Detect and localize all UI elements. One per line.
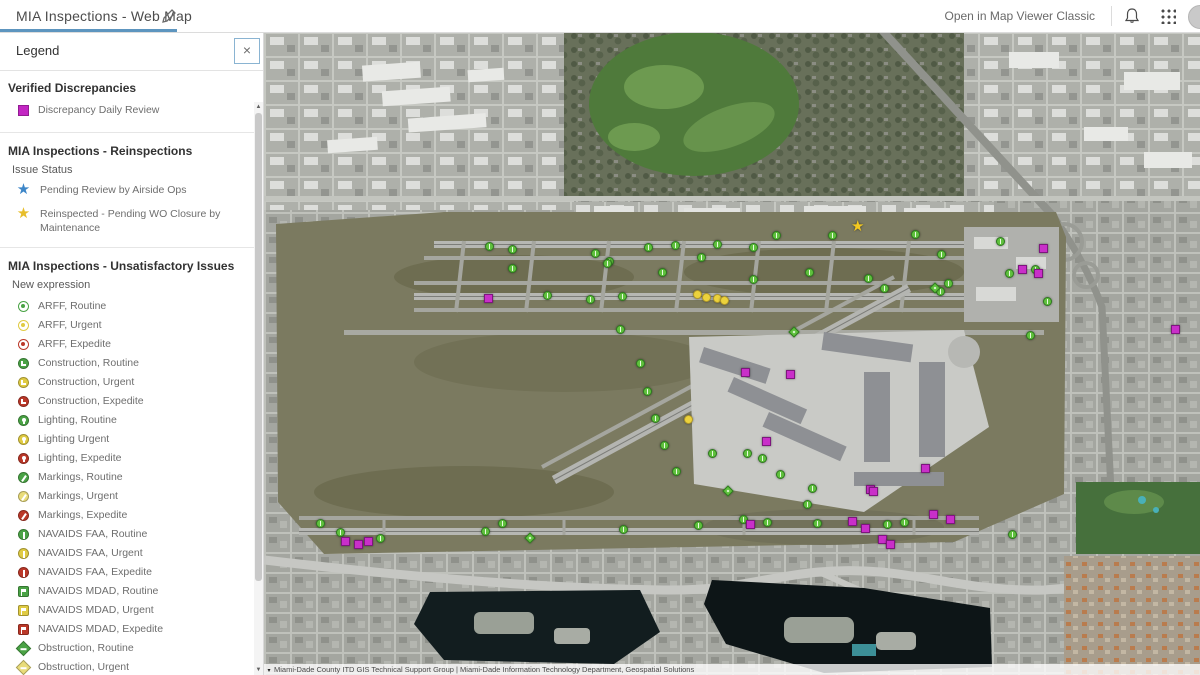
- navfaa-legend-icon: [18, 529, 29, 540]
- green-marker[interactable]: [805, 268, 814, 277]
- green-marker[interactable]: [485, 242, 494, 251]
- legend-item-label: NAVAIDS MDAD, Expedite: [38, 623, 163, 637]
- legend-item-label: NAVAIDS FAA, Routine: [38, 528, 147, 542]
- legend-item-label: Discrepancy Daily Review: [38, 104, 159, 118]
- legend-item-label: NAVAIDS MDAD, Routine: [38, 585, 158, 599]
- yellow-marker[interactable]: [702, 293, 711, 302]
- legend-item: Lighting, Routine: [0, 411, 254, 430]
- green-marker[interactable]: [376, 534, 385, 543]
- arff-legend-icon: [18, 339, 29, 350]
- legend-item: ★Pending Review by Airside Ops: [0, 182, 254, 206]
- legend-item-label: Obstruction, Routine: [38, 642, 134, 656]
- legend-item: Construction, Urgent: [0, 373, 254, 392]
- green-marker[interactable]: [1026, 331, 1035, 340]
- legend-item: NAVAIDS FAA, Routine: [0, 525, 254, 544]
- obstruction-legend-icon: [16, 660, 32, 675]
- legend-section-sublabel: New expression: [12, 279, 246, 291]
- legend-panel-title: Legend: [16, 43, 59, 58]
- legend-section-header: MIA Inspections - Reinspections: [8, 144, 246, 158]
- green-marker[interactable]: [697, 253, 706, 262]
- legend-section: MIA Inspections - ReinspectionsIssue Sta…: [0, 133, 254, 248]
- green-marker[interactable]: [880, 284, 889, 293]
- magenta-square-marker[interactable]: [1171, 325, 1180, 334]
- legend-item-label: NAVAIDS FAA, Urgent: [38, 547, 143, 561]
- green-marker[interactable]: [828, 231, 837, 240]
- legend-item: Obstruction, Routine: [0, 639, 254, 658]
- green-marker[interactable]: [749, 275, 758, 284]
- legend-item-label: Lighting, Expedite: [38, 452, 121, 466]
- yellow-marker[interactable]: [693, 290, 702, 299]
- star-legend-icon: ★: [16, 208, 31, 219]
- legend-item-label: NAVAIDS MDAD, Urgent: [38, 604, 154, 618]
- green-marker[interactable]: [808, 484, 817, 493]
- green-marker[interactable]: [618, 292, 627, 301]
- magenta-square-marker[interactable]: [861, 524, 870, 533]
- legend-item: Construction, Routine: [0, 354, 254, 373]
- lighting-legend-icon: [18, 415, 29, 426]
- scrollbar-down-arrow-icon[interactable]: ▼: [254, 665, 263, 675]
- attribution-toggle-icon[interactable]: ▾: [264, 666, 274, 675]
- green-marker[interactable]: [1008, 530, 1017, 539]
- magenta-square-marker[interactable]: [484, 294, 493, 303]
- magenta-square-marker[interactable]: [1039, 244, 1048, 253]
- construction-legend-icon: [18, 396, 29, 407]
- green-marker[interactable]: [813, 519, 822, 528]
- yellow-marker[interactable]: [684, 415, 693, 424]
- map-view[interactable]: ★ ▾Miami-Dade County ITD GIS Technical S…: [264, 32, 1200, 675]
- green-marker[interactable]: [749, 243, 758, 252]
- legend-item-label: ARFF, Expedite: [38, 338, 111, 352]
- green-marker[interactable]: [498, 519, 507, 528]
- green-marker[interactable]: [671, 241, 680, 250]
- square-legend-icon: [18, 105, 29, 116]
- legend-item: Obstruction, Urgent: [0, 658, 254, 675]
- green-diamond-marker[interactable]: [524, 532, 535, 543]
- green-marker[interactable]: [660, 441, 669, 450]
- green-marker[interactable]: [619, 525, 628, 534]
- legend-section: Verified DiscrepanciesDiscrepancy Daily …: [0, 70, 254, 133]
- green-marker[interactable]: [758, 454, 767, 463]
- green-marker[interactable]: [1005, 269, 1014, 278]
- green-marker[interactable]: [694, 521, 703, 530]
- green-marker[interactable]: [586, 295, 595, 304]
- green-marker[interactable]: [543, 291, 552, 300]
- green-marker[interactable]: [864, 274, 873, 283]
- construction-legend-icon: [18, 377, 29, 388]
- green-marker[interactable]: [336, 528, 345, 537]
- legend-section-header: MIA Inspections - Unsatisfactory Issues: [8, 259, 246, 273]
- navmdad-legend-icon: [18, 624, 29, 635]
- legend-item: NAVAIDS MDAD, Routine: [0, 582, 254, 601]
- legend-item-label: NAVAIDS FAA, Expedite: [38, 566, 152, 580]
- green-marker[interactable]: [763, 518, 772, 527]
- magenta-square-marker[interactable]: [869, 487, 878, 496]
- magenta-square-marker[interactable]: [741, 368, 750, 377]
- legend-item: NAVAIDS FAA, Expedite: [0, 563, 254, 582]
- green-marker[interactable]: [651, 414, 660, 423]
- green-marker[interactable]: [900, 518, 909, 527]
- active-tab-underline: [0, 29, 177, 32]
- green-marker[interactable]: [603, 259, 612, 268]
- legend-item-label: Pending Review by Airside Ops: [40, 184, 187, 198]
- green-marker[interactable]: [508, 245, 517, 254]
- legend-item: Lighting Urgent: [0, 430, 254, 449]
- legend-section-header: Verified Discrepancies: [8, 81, 246, 95]
- markings-legend-icon: [18, 510, 29, 521]
- user-avatar[interactable]: [1188, 5, 1200, 29]
- green-marker[interactable]: [1043, 297, 1052, 306]
- lighting-legend-icon: [18, 434, 29, 445]
- legend-item-label: ARFF, Urgent: [38, 319, 102, 333]
- green-marker[interactable]: [713, 240, 722, 249]
- map-attribution: ▾Miami-Dade County ITD GIS Technical Sup…: [264, 664, 1200, 675]
- magenta-square-marker[interactable]: [929, 510, 938, 519]
- green-marker[interactable]: [643, 387, 652, 396]
- yellow-marker[interactable]: [720, 296, 729, 305]
- green-marker[interactable]: [316, 519, 325, 528]
- legend-panel-header: Legend ×: [0, 32, 263, 71]
- legend-section-sublabel: Issue Status: [12, 164, 246, 176]
- magenta-square-marker[interactable]: [848, 517, 857, 526]
- navfaa-legend-icon: [18, 567, 29, 578]
- markings-legend-icon: [18, 491, 29, 502]
- arff-legend-icon: [18, 320, 29, 331]
- topbar-divider: [1111, 6, 1112, 26]
- navfaa-legend-icon: [18, 548, 29, 559]
- legend-item: Markings, Expedite: [0, 506, 254, 525]
- green-marker[interactable]: [481, 527, 490, 536]
- legend-list: Verified DiscrepanciesDiscrepancy Daily …: [0, 70, 254, 675]
- legend-item: ★Reinspected - Pending WO Closure by Mai…: [0, 206, 254, 235]
- navmdad-legend-icon: [18, 586, 29, 597]
- legend-item: ARFF, Urgent: [0, 316, 254, 335]
- map-markers-layer: ★: [264, 32, 1200, 675]
- magenta-square-marker[interactable]: [341, 537, 350, 546]
- magenta-square-marker[interactable]: [946, 515, 955, 524]
- legend-item-label: ARFF, Routine: [38, 300, 106, 314]
- open-map-viewer-classic-link[interactable]: Open in Map Viewer Classic: [944, 9, 1095, 23]
- legend-item-label: Lighting Urgent: [38, 433, 109, 447]
- green-diamond-marker[interactable]: [788, 326, 799, 337]
- legend-item: Markings, Routine: [0, 468, 254, 487]
- green-marker[interactable]: [616, 325, 625, 334]
- legend-panel: Legend × Verified DiscrepanciesDiscrepan…: [0, 32, 264, 675]
- legend-item-label: Markings, Urgent: [38, 490, 118, 504]
- legend-item: ARFF, Routine: [0, 297, 254, 316]
- legend-item-label: Reinspected - Pending WO Closure by Main…: [40, 208, 244, 235]
- magenta-square-marker[interactable]: [786, 370, 795, 379]
- close-icon[interactable]: ×: [234, 38, 260, 64]
- attribution-text: Miami-Dade County ITD GIS Technical Supp…: [274, 665, 694, 674]
- scrollbar-up-arrow-icon[interactable]: ▲: [254, 102, 263, 112]
- magenta-square-marker[interactable]: [762, 437, 771, 446]
- magenta-square-marker[interactable]: [1034, 269, 1043, 278]
- magenta-square-marker[interactable]: [746, 520, 755, 529]
- green-marker[interactable]: [944, 279, 953, 288]
- magenta-square-marker[interactable]: [354, 540, 363, 549]
- app-launcher-grid-icon[interactable]: [1160, 8, 1176, 24]
- magenta-square-marker[interactable]: [1018, 265, 1027, 274]
- green-marker[interactable]: [883, 520, 892, 529]
- magenta-square-marker[interactable]: [921, 464, 930, 473]
- legend-section: MIA Inspections - Unsatisfactory IssuesN…: [0, 248, 254, 675]
- scrollbar-thumb[interactable]: [255, 113, 262, 581]
- legend-item: Lighting, Expedite: [0, 449, 254, 468]
- green-marker[interactable]: [996, 237, 1005, 246]
- green-marker[interactable]: [708, 449, 717, 458]
- edit-title-pencil-icon[interactable]: [160, 7, 178, 25]
- green-marker[interactable]: [937, 250, 946, 259]
- legend-item-label: Lighting, Routine: [38, 414, 117, 428]
- navmdad-legend-icon: [18, 605, 29, 616]
- green-marker[interactable]: [636, 359, 645, 368]
- legend-item: Markings, Urgent: [0, 487, 254, 506]
- arff-legend-icon: [18, 301, 29, 312]
- legend-item-label: Markings, Expedite: [38, 509, 127, 523]
- legend-item: NAVAIDS MDAD, Urgent: [0, 601, 254, 620]
- legend-item: NAVAIDS FAA, Urgent: [0, 544, 254, 563]
- legend-item-label: Construction, Routine: [38, 357, 139, 371]
- legend-item: ARFF, Expedite: [0, 335, 254, 354]
- green-marker[interactable]: [803, 500, 812, 509]
- legend-item-label: Markings, Routine: [38, 471, 123, 485]
- legend-item-label: Obstruction, Urgent: [38, 661, 129, 675]
- lighting-legend-icon: [18, 453, 29, 464]
- obstruction-legend-icon: [16, 641, 32, 657]
- legend-scrollbar[interactable]: ▲ ▼: [254, 102, 263, 675]
- green-marker[interactable]: [743, 449, 752, 458]
- top-bar: MIA Inspections - Web Map Open in Map Vi…: [0, 0, 1200, 33]
- green-marker[interactable]: [776, 470, 785, 479]
- magenta-square-marker[interactable]: [886, 540, 895, 549]
- green-marker[interactable]: [772, 231, 781, 240]
- green-marker[interactable]: [672, 467, 681, 476]
- markings-legend-icon: [18, 472, 29, 483]
- green-marker[interactable]: [911, 230, 920, 239]
- legend-item-label: Construction, Expedite: [38, 395, 144, 409]
- green-marker[interactable]: [508, 264, 517, 273]
- green-marker[interactable]: [591, 249, 600, 258]
- green-marker[interactable]: [644, 243, 653, 252]
- green-marker[interactable]: [658, 268, 667, 277]
- notifications-bell-icon[interactable]: [1122, 6, 1142, 26]
- legend-item: Construction, Expedite: [0, 392, 254, 411]
- legend-item-label: Construction, Urgent: [38, 376, 134, 390]
- green-diamond-marker[interactable]: [722, 485, 733, 496]
- yellow-star-marker[interactable]: ★: [851, 221, 864, 233]
- star-legend-icon: ★: [16, 184, 31, 195]
- legend-item: Discrepancy Daily Review: [0, 101, 254, 120]
- construction-legend-icon: [18, 358, 29, 369]
- legend-item: NAVAIDS MDAD, Expedite: [0, 620, 254, 639]
- magenta-square-marker[interactable]: [364, 537, 373, 546]
